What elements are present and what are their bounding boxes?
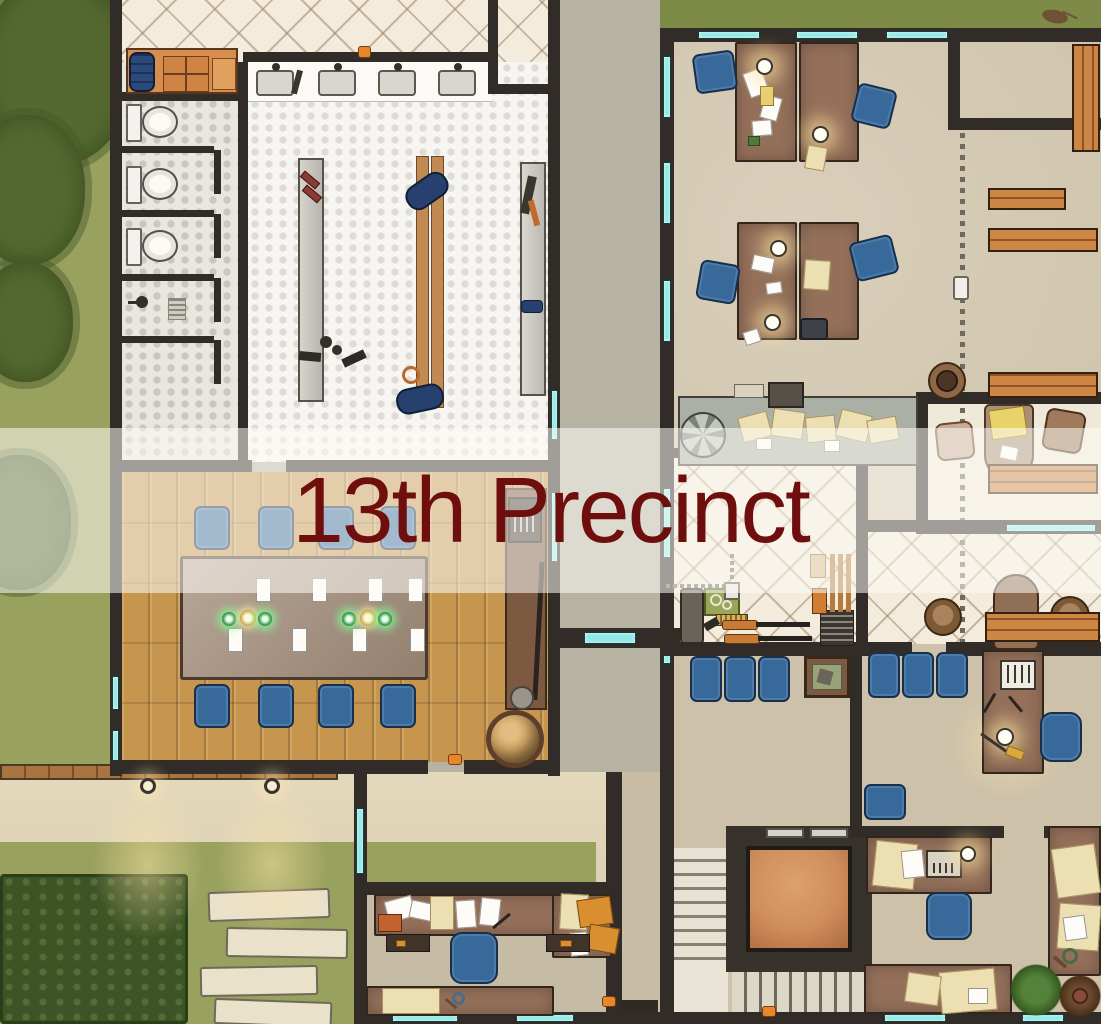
fedora-hat (924, 598, 962, 636)
title-banner: 13th Precinct (0, 428, 1101, 593)
window (112, 676, 119, 710)
wall-left-exterior (110, 0, 122, 776)
window (698, 31, 760, 39)
under-desk-drawer (386, 934, 430, 952)
elevator-door-rail (810, 828, 848, 838)
paperwork (901, 849, 926, 879)
drawer-contents (396, 940, 406, 947)
paperwork (751, 119, 772, 137)
stall-door (214, 278, 221, 322)
wall-left-building-south (110, 760, 428, 774)
bar-globe (486, 710, 544, 768)
kettlebell (332, 345, 342, 355)
elevator-car-floor (746, 846, 852, 952)
window (663, 280, 671, 342)
case-file (1051, 843, 1101, 899)
blue-pouch (521, 300, 543, 313)
desk-lamp (764, 314, 781, 331)
guest-chair (868, 652, 900, 698)
toilet-bowl (142, 168, 178, 200)
handcuffs (722, 600, 732, 610)
door-marker (448, 754, 462, 765)
banker-lamp (360, 610, 376, 626)
banker-lamp (342, 612, 356, 626)
wall-stall-divider (122, 274, 214, 281)
desk-lamp (756, 58, 773, 75)
drawer-contents (560, 940, 572, 947)
faucet (272, 63, 280, 71)
case-file (382, 988, 440, 1014)
lamp-glow (216, 790, 328, 940)
hat-on-stand (936, 370, 958, 392)
jump-rope (402, 366, 420, 384)
wall-bathroom-gym-divider (238, 62, 248, 462)
desk-lamp (770, 240, 787, 257)
wall-stall-divider (122, 210, 214, 217)
alarm-bell (358, 46, 371, 58)
briefcase (768, 382, 804, 408)
lamp-glow (92, 790, 204, 940)
window (886, 31, 948, 39)
toilet-tank (126, 104, 142, 142)
case-file (803, 259, 831, 291)
conference-chair (380, 684, 416, 728)
stepping-stone (214, 998, 333, 1024)
window (884, 1014, 946, 1022)
sink (438, 70, 476, 96)
wall-holding-cell-side (948, 28, 960, 128)
case-file (904, 972, 942, 1006)
banker-lamp (378, 612, 392, 626)
rifle-stock (722, 620, 758, 630)
paperwork (455, 899, 477, 928)
fence-gate-latch (953, 276, 969, 300)
wall-captain-office-west (850, 656, 862, 828)
sink (378, 70, 416, 96)
telephone (800, 318, 828, 340)
stepping-stone (200, 965, 319, 997)
door-marker (762, 1006, 776, 1017)
window (663, 56, 671, 118)
captain-chair (1040, 712, 1082, 762)
dumbbell-black (299, 351, 322, 362)
toilet-tank (126, 166, 142, 204)
toilet-bowl (142, 106, 178, 138)
banker-lamp (258, 612, 272, 626)
map-title: 13th Precinct (292, 464, 809, 557)
conference-chair (318, 684, 354, 728)
rifle-barrel (756, 622, 810, 627)
guest-chair (864, 784, 906, 820)
cabinet-doors (163, 56, 209, 92)
wall-lobby-corner (488, 84, 550, 94)
toilet-bowl (142, 230, 178, 262)
guest-chair (902, 652, 934, 698)
rifle-barrel (758, 636, 812, 641)
wall-stall-divider (122, 336, 214, 343)
shower-arm (128, 301, 138, 304)
notepad (292, 628, 307, 652)
grass-top-right (660, 0, 1101, 30)
sink (318, 70, 356, 96)
conference-chair (258, 684, 294, 728)
armory-cabinet (680, 588, 704, 644)
banker-lamp (240, 610, 256, 626)
staircase-steps (672, 848, 728, 960)
stall-door (214, 340, 221, 384)
wall-lamp (264, 778, 280, 794)
notepad (352, 628, 367, 652)
office-chair (926, 892, 972, 940)
elevator-door-rail (766, 828, 804, 838)
faucet (334, 63, 342, 71)
rifle-stock (724, 634, 760, 644)
wall-lamp (140, 778, 156, 794)
faucet (394, 63, 402, 71)
notepad (228, 628, 243, 652)
doormat (622, 1000, 658, 1012)
storage-box (212, 58, 236, 90)
case-file (804, 144, 828, 171)
window (663, 162, 671, 224)
ledger (430, 896, 454, 930)
conference-chair (194, 684, 230, 728)
typewriter (1000, 660, 1036, 690)
paperwork (968, 988, 988, 1004)
desk-lamp (960, 846, 976, 862)
door-marker (602, 996, 616, 1007)
sink (256, 70, 294, 96)
precinct-floorplan-map: 13th Precinct (0, 0, 1101, 1024)
towel-stack (129, 52, 155, 92)
cell-bench (988, 188, 1066, 210)
magnifying-glass (1062, 948, 1078, 964)
plant-pot (1072, 988, 1088, 1004)
handcuffs (710, 594, 722, 606)
window (112, 730, 119, 764)
legal-pad (760, 86, 774, 106)
banker-lamp (222, 612, 236, 626)
records-door (356, 808, 364, 874)
office-chair (691, 49, 738, 94)
stall-door (214, 150, 221, 194)
cell-bench (1072, 44, 1100, 152)
ashtray-stand (510, 686, 534, 710)
alley-door (584, 632, 636, 644)
cell-bench (988, 228, 1098, 252)
notebook-green (748, 136, 760, 146)
typewriter (926, 850, 962, 878)
faucet (454, 63, 462, 71)
typewriter-orange (378, 914, 402, 932)
paperwork (765, 281, 783, 295)
card-file-box (734, 384, 764, 398)
cell-bench (985, 612, 1100, 642)
wall-stall-divider (122, 146, 214, 153)
desk-lamp (812, 126, 829, 143)
office-chair (450, 932, 498, 984)
waiting-chair (690, 656, 722, 702)
wall-right-of-left-building (548, 0, 560, 776)
cell-bench (988, 372, 1098, 398)
waiting-chair (758, 656, 790, 702)
stall-door (214, 214, 221, 258)
office-chair (695, 259, 741, 305)
window (796, 31, 858, 39)
rifle-rack (820, 610, 854, 646)
kettlebell (320, 336, 332, 348)
paperwork (1062, 915, 1087, 942)
wall-lobby-corner (488, 0, 498, 90)
notepad (410, 628, 425, 652)
orange-folder (586, 924, 620, 955)
toilet-tank (126, 228, 142, 266)
orange-folder (576, 896, 614, 928)
waiting-chair (724, 656, 756, 702)
floor-drain (168, 298, 186, 320)
